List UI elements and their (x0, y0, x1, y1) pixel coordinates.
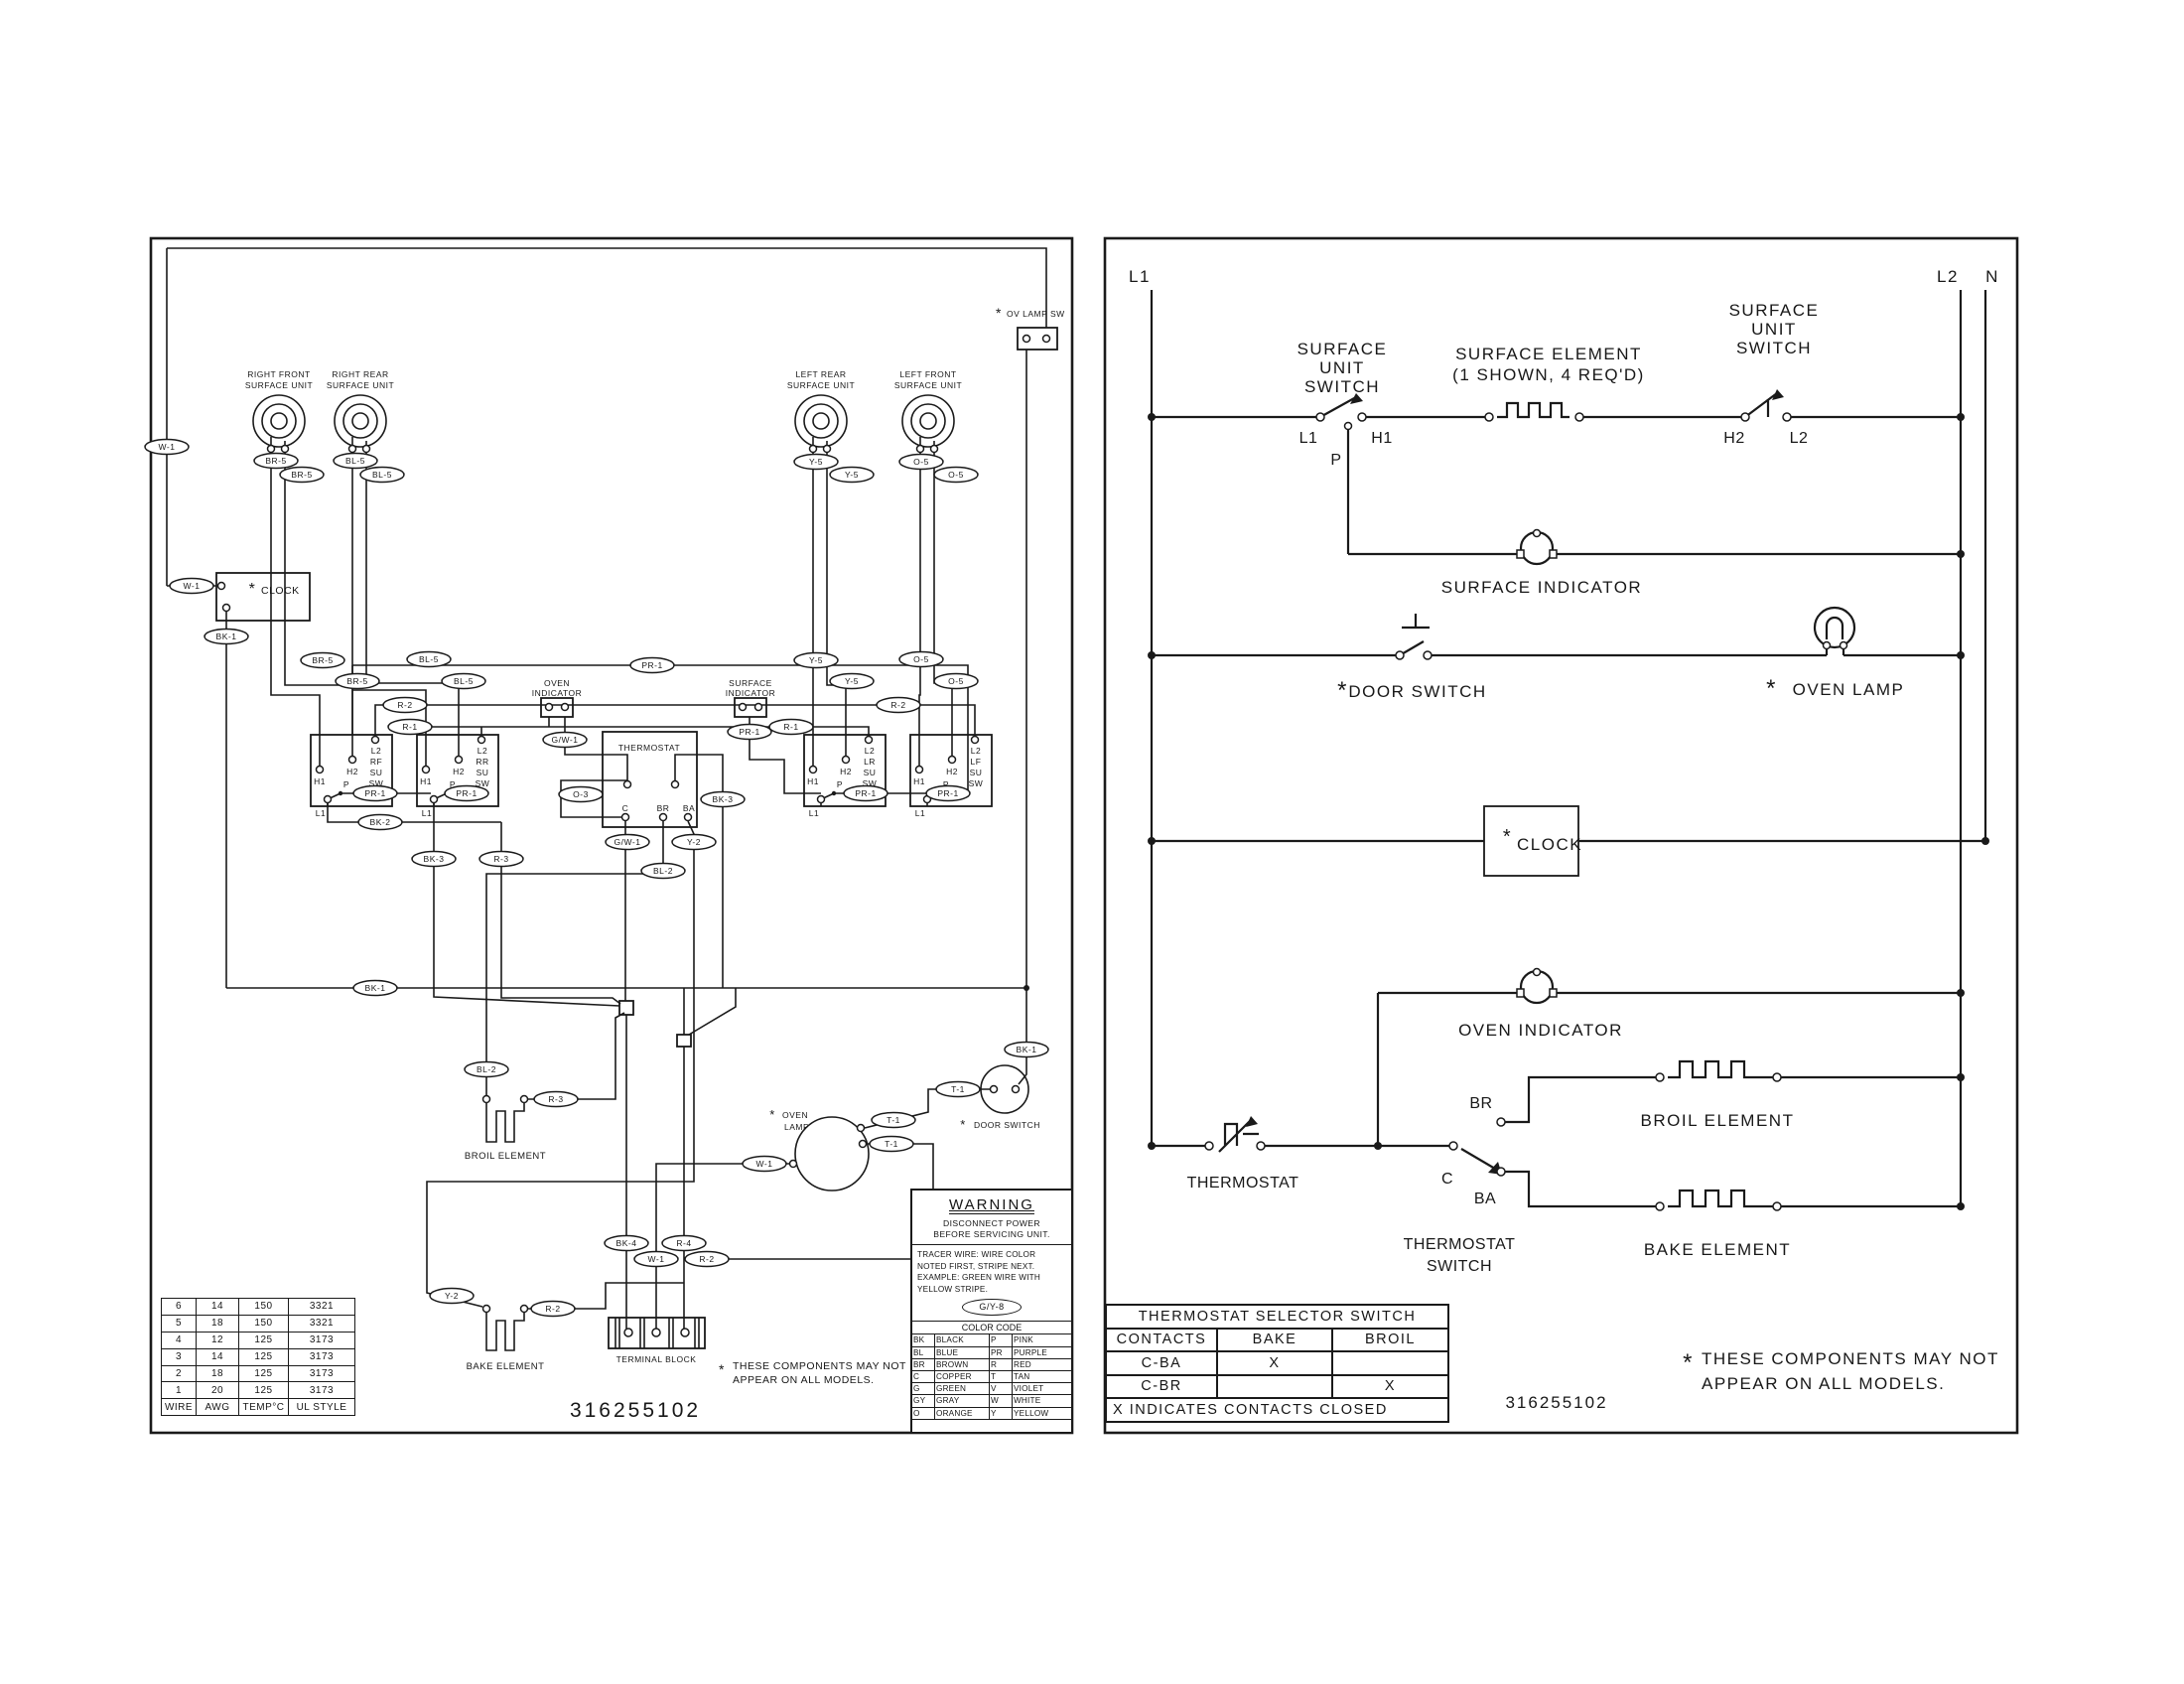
wire-label: O-3 (559, 787, 603, 802)
terminal (1396, 651, 1404, 659)
svg-text:BK-3: BK-3 (713, 794, 734, 804)
generated-left-components: RIGHT FRONTSURFACE UNITRIGHT REARSURFACE… (145, 369, 1048, 1317)
surface-unit-switch-label: SURFACE (1729, 301, 1820, 320)
terminal (1024, 336, 1030, 343)
splice-junction (619, 1001, 633, 1015)
svg-text:BK-4: BK-4 (616, 1238, 637, 1248)
color-code-title: COLOR CODE (912, 1322, 1071, 1334)
unit-code: LF (971, 757, 982, 767)
terminal (483, 1306, 490, 1313)
wire-label: PR-1 (353, 786, 397, 801)
asterisk: * (996, 305, 1002, 321)
wire-label: G/W-1 (543, 733, 587, 748)
wire-label: W-1 (145, 440, 189, 455)
contact-label-ba: BA (1474, 1191, 1496, 1207)
wiring-diagram-page: * OV LAMP SW * CLOCK OVEN INDICATOR SURF… (0, 0, 2184, 1684)
surface-unit-switch-box: H1H2L2RFSUSWL1P (311, 735, 392, 818)
svg-text:P: P (343, 779, 349, 789)
terminal (991, 1086, 998, 1093)
n-bus-label: N (1985, 267, 1999, 286)
surface-unit-switch-label: SURFACE (1297, 340, 1388, 358)
svg-text:T-1: T-1 (951, 1084, 965, 1094)
thermostat-label: THERMOSTAT (618, 743, 680, 753)
thermostat-switch-label: SWITCH (1427, 1258, 1492, 1275)
svg-text:W-1: W-1 (159, 442, 176, 452)
wire-label: BL-2 (641, 864, 685, 879)
terminal (1656, 1073, 1664, 1081)
svg-text:BK-3: BK-3 (424, 854, 445, 864)
svg-text:PR-1: PR-1 (855, 788, 876, 798)
lamp-filament (1827, 618, 1843, 655)
wire-run (328, 793, 927, 1006)
svg-text:O-5: O-5 (913, 457, 929, 467)
surface-unit-coil: RIGHT FRONTSURFACE UNIT (245, 369, 313, 453)
wire-label: BL-5 (360, 468, 404, 483)
oven-lamp-label: OVEN LAMP (1793, 680, 1905, 699)
asterisk: * (769, 1107, 775, 1122)
svg-text:BL-2: BL-2 (477, 1064, 496, 1074)
terminal (1741, 413, 1749, 421)
terminal (1841, 642, 1847, 649)
oven-indicator-label: INDICATOR (532, 688, 582, 698)
wire-label: Y-5 (794, 653, 838, 668)
wire-label: BK-3 (701, 792, 745, 807)
asterisk: * (1337, 677, 1347, 704)
svg-text:H2: H2 (840, 767, 852, 776)
svg-text:BK-1: BK-1 (365, 983, 386, 993)
surface-unit-coil: RIGHT REARSURFACE UNIT (327, 369, 394, 453)
svg-text:R-2: R-2 (699, 1254, 714, 1264)
svg-text:O-5: O-5 (948, 676, 964, 686)
table-row: OORANGEYYELLOW (912, 1407, 1071, 1419)
table-header-row: WIREAWGTEMP°CUL STYLE (162, 1399, 355, 1416)
wire-label: BK-3 (412, 852, 456, 867)
thermostat-terminal-c: C (622, 803, 629, 813)
terminal (483, 1096, 490, 1103)
svg-text:BL-5: BL-5 (372, 470, 392, 480)
terminal (681, 1329, 689, 1336)
wire-label: O-5 (934, 468, 978, 483)
svg-text:Y-2: Y-2 (687, 837, 701, 847)
surface-unit-label: SURFACE UNIT (787, 380, 855, 390)
svg-text:PR-1: PR-1 (456, 788, 477, 798)
surface-unit-switch-label: UNIT (1319, 358, 1365, 377)
svg-text:BL-5: BL-5 (454, 676, 474, 686)
surface-unit-label: LEFT FRONT (899, 369, 956, 379)
wire-label: R-2 (877, 698, 920, 713)
wire-label: BK-1 (1005, 1043, 1048, 1057)
terminal (622, 814, 629, 821)
warning-message: DISCONNECT POWER BEFORE SERVICING UNIT. (912, 1218, 1071, 1239)
svg-text:BK-1: BK-1 (216, 631, 237, 641)
wire-label: PR-1 (728, 725, 771, 740)
wire-label: R-2 (531, 1302, 575, 1317)
unit-code: LR (864, 757, 876, 767)
terminal (562, 704, 569, 711)
switch-blades (1320, 393, 1777, 417)
wire-label: PR-1 (445, 786, 488, 801)
asterisk: * (719, 1361, 725, 1377)
wire-label: W-1 (743, 1157, 786, 1172)
svg-text:R-2: R-2 (397, 700, 412, 710)
wire-run (427, 780, 694, 1307)
surface-unit-label: RIGHT REAR (332, 369, 388, 379)
terminal (858, 1125, 865, 1132)
wire-label: Y-2 (672, 835, 716, 850)
terminal (755, 704, 762, 711)
wire-label: O-5 (934, 674, 978, 689)
svg-text:H2: H2 (453, 767, 465, 776)
svg-text:BL-5: BL-5 (419, 654, 439, 664)
terminal-label-h1: H1 (1371, 430, 1392, 447)
svg-text:BL-2: BL-2 (653, 866, 673, 876)
table-row: 6141503321 (162, 1299, 355, 1316)
table-row: C-BAX (1106, 1351, 1448, 1375)
oven-lamp-symbol (1815, 608, 1854, 647)
wire-label: W-1 (634, 1252, 678, 1267)
svg-text:SU: SU (477, 768, 489, 777)
svg-text:BR-5: BR-5 (312, 655, 333, 665)
surface-unit-label: SURFACE UNIT (245, 380, 313, 390)
surface-element-label: (1 SHOWN, 4 REQ'D) (1452, 365, 1645, 384)
svg-text:L2: L2 (371, 746, 381, 756)
svg-text:PR-1: PR-1 (641, 660, 662, 670)
svg-text:Y-5: Y-5 (845, 470, 859, 480)
terminal-ba (1497, 1168, 1505, 1176)
terminal (1257, 1142, 1265, 1150)
table-row: BKBLACKPPINK (912, 1334, 1071, 1346)
surface-unit-label: SURFACE UNIT (894, 380, 962, 390)
wire-label: Y-5 (794, 455, 838, 470)
tracer-example-tag: G/Y-8 (962, 1299, 1022, 1316)
table-header-row: CONTACTS BAKE BROIL (1106, 1329, 1448, 1352)
svg-text:SU: SU (864, 768, 877, 777)
terminal (1773, 1073, 1781, 1081)
indicator-top (1534, 530, 1541, 537)
svg-text:L1: L1 (809, 808, 819, 818)
terminal (652, 1329, 660, 1336)
contact-label-br: BR (1469, 1095, 1492, 1112)
wire-label: W-1 (170, 579, 213, 594)
table-row: 4121253173 (162, 1332, 355, 1348)
footnote-line: APPEAR ON ALL MODELS. (1702, 1374, 1945, 1393)
wire-label: BR-5 (280, 468, 324, 483)
color-code-table: BKBLACKPPINK BLBLUEPRPURPLE BRBROWNRRED … (912, 1334, 1071, 1419)
unit-code: RR (476, 757, 488, 767)
indicator-tab (1550, 550, 1557, 558)
terminal (218, 583, 225, 590)
svg-text:L2: L2 (478, 746, 487, 756)
svg-text:H1: H1 (807, 776, 819, 786)
table-row: GGREENVVIOLET (912, 1383, 1071, 1395)
wire-label: BL-5 (334, 454, 377, 469)
surface-indicator-label: SURFACE INDICATOR (1441, 578, 1642, 597)
surface-unit-switch-box: H1H2L2RRSUSWL1P (417, 735, 498, 818)
blade-arrow (1246, 1116, 1258, 1127)
wire-label: R-4 (662, 1236, 706, 1251)
surface-unit-label: SURFACE UNIT (327, 380, 394, 390)
svg-text:G/W-1: G/W-1 (614, 837, 641, 847)
svg-text:T-1: T-1 (885, 1139, 898, 1149)
svg-text:R-2: R-2 (545, 1304, 560, 1314)
splice-junction (677, 1035, 691, 1047)
svg-text:W-1: W-1 (648, 1254, 665, 1264)
wire-label: BR-5 (336, 674, 379, 689)
wire-label: BK-1 (205, 630, 248, 644)
svg-text:R-3: R-3 (493, 854, 508, 864)
terminal (521, 1306, 528, 1313)
wire-label: BL-2 (465, 1062, 508, 1077)
contact-label-c: C (1441, 1171, 1453, 1188)
svg-text:W-1: W-1 (756, 1159, 773, 1169)
svg-text:P: P (837, 779, 843, 789)
l1-bus-label: L1 (1129, 267, 1151, 286)
broil-element-symbol (486, 1103, 524, 1142)
wire-label: Y-5 (830, 674, 874, 689)
terminal-label-h2: H2 (1723, 430, 1744, 447)
wire-label: G/W-1 (606, 835, 649, 850)
wire-label: T-1 (870, 1137, 913, 1152)
wire-label: R-1 (769, 720, 813, 735)
terminal (1043, 336, 1050, 343)
terminal (1656, 1202, 1664, 1210)
wire-label: PR-1 (844, 786, 887, 801)
bake-element-label: BAKE ELEMENT (1644, 1240, 1791, 1259)
tracer-note: TRACER WIRE: WIRE COLOR NOTED FIRST, STR… (917, 1249, 1068, 1295)
terminal (1773, 1202, 1781, 1210)
terminal (740, 704, 747, 711)
indicator-top (1534, 969, 1541, 976)
clock-label: CLOCK (261, 585, 300, 597)
surface-element-label: SURFACE ELEMENT (1455, 345, 1642, 363)
indicator-tab (1517, 550, 1524, 558)
surface-indicator-label: INDICATOR (726, 688, 775, 698)
wire-label: O-5 (899, 652, 943, 667)
svg-text:H1: H1 (420, 776, 432, 786)
terminal-label-p: P (1330, 452, 1341, 469)
l2-bus-label: L2 (1937, 267, 1959, 286)
surface-unit-switch-box: H1H2L2LRSUSWL1P (804, 735, 886, 818)
table-footer-row: X INDICATES CONTACTS CLOSED (1106, 1398, 1448, 1422)
table-row: 5181503321 (162, 1315, 355, 1332)
terminal (1783, 413, 1791, 421)
table-row: BLBLUEPRPURPLE (912, 1346, 1071, 1358)
terminal (672, 781, 679, 788)
wire-label: Y-5 (830, 468, 874, 483)
surface-unit-coil: LEFT REARSURFACE UNIT (787, 369, 855, 453)
part-number: 316255102 (1505, 1393, 1607, 1412)
warning-box: WARNING DISCONNECT POWER BEFORE SERVICIN… (910, 1189, 1073, 1434)
terminal-label-l1: L1 (1299, 430, 1318, 447)
indicator-tab (1550, 989, 1557, 997)
wire-label: O-5 (899, 455, 943, 470)
terminal (790, 1161, 797, 1168)
svg-text:H2: H2 (346, 767, 358, 776)
thermostat-switch-label: THERMOSTAT (1404, 1236, 1516, 1253)
table-title-row: THERMOSTAT SELECTOR SWITCH (1106, 1305, 1448, 1329)
terminal (1575, 413, 1583, 421)
terminal-br (1497, 1118, 1505, 1126)
wire-label: R-2 (383, 698, 427, 713)
wire-label: R-3 (534, 1092, 578, 1107)
table-row: BRBROWNRRED (912, 1358, 1071, 1370)
wire-label: Y-2 (430, 1289, 474, 1304)
svg-text:Y-5: Y-5 (809, 457, 823, 467)
svg-text:PR-1: PR-1 (937, 788, 958, 798)
warning-title: WARNING (912, 1196, 1071, 1213)
surface-element-symbol (1497, 403, 1570, 417)
thermostat-wire (1152, 1146, 1495, 1169)
surface-unit-label: RIGHT FRONT (247, 369, 310, 379)
part-number: 316255102 (570, 1399, 701, 1422)
wire-label: BR-5 (301, 653, 344, 668)
svg-text:BR-5: BR-5 (346, 676, 367, 686)
terminal (1358, 413, 1366, 421)
thermostat-terminal-ba: BA (683, 803, 695, 813)
wire-label: BK-4 (605, 1236, 648, 1251)
clock-label: CLOCK (1517, 835, 1582, 854)
thermostat-label: THERMOSTAT (1187, 1175, 1299, 1192)
svg-text:Y-5: Y-5 (809, 655, 823, 665)
svg-text:L1: L1 (915, 808, 925, 818)
table-row: 3141253173 (162, 1348, 355, 1365)
door-switch-label: DOOR SWITCH (1348, 682, 1486, 701)
terminal (1824, 642, 1831, 649)
terminal (660, 814, 667, 821)
svg-text:G/W-1: G/W-1 (552, 735, 579, 745)
wire-label: BL-5 (442, 674, 485, 689)
svg-text:Y-5: Y-5 (845, 676, 859, 686)
oven-indicator-label: OVEN INDICATOR (1458, 1021, 1623, 1040)
svg-text:L1: L1 (422, 808, 432, 818)
svg-text:PR-1: PR-1 (739, 727, 759, 737)
wire-label: T-1 (936, 1082, 980, 1097)
element-wires (1505, 1077, 1961, 1206)
asterisk: * (1683, 1349, 1693, 1376)
table-row: CCOPPERTTAN (912, 1370, 1071, 1382)
svg-text:O-5: O-5 (913, 654, 929, 664)
wire-junction (1024, 985, 1029, 991)
terminal (1205, 1142, 1213, 1150)
bake-element-symbol (486, 1313, 524, 1350)
terminal (685, 814, 692, 821)
door-switch-label: DOOR SWITCH (974, 1120, 1040, 1130)
surface-unit-switch-label: SWITCH (1736, 339, 1812, 357)
svg-text:H2: H2 (946, 767, 958, 776)
wire-gauge-table: 6141503321 5181503321 4121253173 3141253… (161, 1298, 355, 1416)
asterisk: * (1766, 675, 1776, 702)
oven-indicator-label: OVEN (544, 678, 570, 688)
asterisk: * (960, 1117, 966, 1132)
surface-unit-switch-box: H1H2L2LFSUSWL1P (910, 735, 992, 818)
svg-text:BL-5: BL-5 (345, 456, 365, 466)
terminal (521, 1096, 528, 1103)
oven-lamp-label: LAMP (784, 1122, 809, 1132)
terminal (223, 605, 230, 612)
terminal (1424, 651, 1432, 659)
surface-indicator-label: SURFACE (729, 678, 772, 688)
svg-text:H1: H1 (314, 776, 326, 786)
svg-text:SU: SU (970, 768, 983, 777)
svg-text:BK-1: BK-1 (1017, 1045, 1037, 1054)
svg-text:Y-2: Y-2 (445, 1291, 459, 1301)
terminal (624, 1329, 632, 1336)
broil-element-label: BROIL ELEMENT (465, 1151, 546, 1162)
schematic-canvas: * OV LAMP SW * CLOCK OVEN INDICATOR SURF… (0, 0, 2184, 1684)
svg-text:SU: SU (370, 768, 383, 777)
svg-text:BR-5: BR-5 (291, 470, 312, 480)
svg-text:W-1: W-1 (184, 581, 201, 591)
broil-element-symbol (1668, 1061, 1777, 1077)
surface-unit-coil: LEFT FRONTSURFACE UNIT (894, 369, 962, 453)
terminal (624, 781, 631, 788)
footnote-line: APPEAR ON ALL MODELS. (733, 1374, 875, 1386)
bake-element-label: BAKE ELEMENT (467, 1361, 545, 1372)
wire-label: T-1 (872, 1113, 915, 1128)
oven-lamp-label: OVEN (782, 1110, 808, 1120)
terminal (860, 1141, 867, 1148)
thermostat-selector-table: THERMOSTAT SELECTOR SWITCH CONTACTS BAKE… (1105, 1304, 1449, 1423)
junction-dots (1148, 413, 1989, 1210)
wire-label: BK-1 (353, 981, 397, 996)
wire-label: R-1 (388, 720, 432, 735)
asterisk: * (249, 581, 256, 598)
wire-label: BK-2 (358, 815, 402, 830)
clock-box (216, 573, 310, 621)
svg-text:H1: H1 (913, 776, 925, 786)
svg-text:T-1: T-1 (887, 1115, 900, 1125)
svg-text:R-4: R-4 (676, 1238, 691, 1248)
wire-label: PR-1 (926, 786, 970, 801)
asterisk: * (1503, 826, 1511, 848)
terminal-label-l2: L2 (1790, 430, 1809, 447)
wire-label: R-3 (479, 852, 523, 867)
surface-unit-switch-label: SWITCH (1304, 377, 1380, 396)
table-row: C-BRX (1106, 1375, 1448, 1399)
svg-text:BK-2: BK-2 (370, 817, 391, 827)
svg-text:L2: L2 (971, 746, 981, 756)
unit-code: RF (370, 757, 382, 767)
indicator-tab (1517, 989, 1524, 997)
table-row: 2181253173 (162, 1365, 355, 1382)
svg-text:PR-1: PR-1 (364, 788, 385, 798)
broil-element-label: BROIL ELEMENT (1641, 1111, 1795, 1130)
surface-unit-switch-label: UNIT (1751, 320, 1797, 339)
footnote-line: THESE COMPONENTS MAY NOT (1702, 1349, 1999, 1368)
ov-lamp-sw-label: OV LAMP SW (1007, 309, 1065, 319)
bake-element-symbol (1668, 1191, 1777, 1206)
svg-text:R-2: R-2 (890, 700, 905, 710)
svg-text:SW: SW (969, 778, 984, 788)
svg-text:L2: L2 (865, 746, 875, 756)
wire-label: R-2 (685, 1252, 729, 1267)
svg-text:R-1: R-1 (402, 722, 417, 732)
svg-text:R-1: R-1 (783, 722, 798, 732)
surface-unit-label: LEFT REAR (795, 369, 846, 379)
power-buses (1152, 290, 1985, 1206)
table-row: GYGRAYWWHITE (912, 1395, 1071, 1407)
door-switch-contacts (1400, 614, 1430, 655)
svg-text:L1: L1 (316, 808, 326, 818)
wire-label: BL-5 (407, 652, 451, 667)
terminal (1449, 1142, 1457, 1150)
svg-text:BR-5: BR-5 (265, 456, 286, 466)
terminal (1485, 413, 1493, 421)
svg-text:O-3: O-3 (573, 789, 589, 799)
svg-text:R-3: R-3 (548, 1094, 563, 1104)
right-panel-schematic: L1 L2 N SURFACE UNIT SWITCH L1 H1 P SURF… (1105, 238, 2017, 1433)
divider (912, 1244, 1071, 1245)
